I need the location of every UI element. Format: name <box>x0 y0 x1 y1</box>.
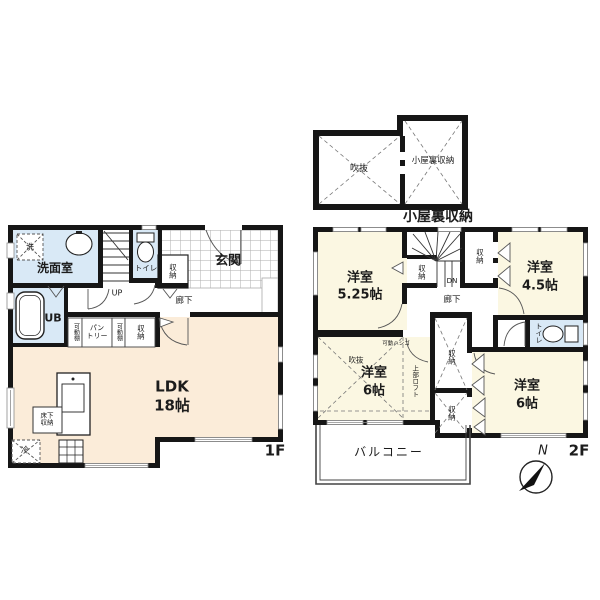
room-label-unitbath: UB <box>44 313 61 326</box>
label-closet-hall: 収納 <box>168 264 177 279</box>
label-void-2f: 吹抜 <box>349 357 364 366</box>
compass-north-label: N <box>538 445 548 460</box>
room-label-45-size: 4.5帖 <box>522 280 558 295</box>
label-balcony: バルコニー <box>354 446 424 460</box>
room-label-6r-size: 6帖 <box>516 398 538 413</box>
stove-icon <box>59 440 83 463</box>
toilet-1f-icon <box>137 233 154 242</box>
label-closet-stairs: 収納 <box>417 265 426 280</box>
label-ladder: 可動ハシゴ <box>382 341 410 347</box>
kitchen-sink-icon <box>62 384 84 412</box>
room-label-toilet-1f: トイレ <box>135 265 158 274</box>
room-label-525-size: 5.25帖 <box>337 289 382 304</box>
sink-icon <box>66 233 92 255</box>
label-corridor-2f: 廊下 <box>443 296 460 306</box>
compass-icon <box>519 461 552 493</box>
room-label-washroom: 洗面室 <box>37 262 73 276</box>
room-label-6r: 洋室 <box>514 380 540 395</box>
label-pantry: パントリー <box>87 324 108 340</box>
floorplan-canvas: 洗面室 洗 UB トイレ UP 収納 玄関 廊下 可動棚 パントリー 可動棚 収… <box>0 0 600 600</box>
label-stairs-down: DN <box>447 277 458 285</box>
label-fridge: 冷 <box>21 445 29 454</box>
floor1-label: 1F <box>265 442 286 459</box>
room-label-45: 洋室 <box>527 262 553 277</box>
room-label-ldk: LDK <box>155 378 189 395</box>
room-label-entrance: 玄関 <box>215 255 241 270</box>
stairs-1f <box>103 231 129 281</box>
room-label-6l-size: 6帖 <box>363 385 385 400</box>
room-label-ldk-size: 18帖 <box>154 397 190 414</box>
room-label-6l: 洋室 <box>361 367 387 382</box>
attic-caption: 小屋裏収納 <box>403 209 473 225</box>
label-stairs-up: UP <box>112 288 123 297</box>
label-corridor-1f: 廊下 <box>175 297 192 307</box>
room-label-525: 洋室 <box>347 272 373 287</box>
label-closet-mid: 収納 <box>447 350 456 365</box>
label-closet-kitchen: 収納 <box>136 325 145 340</box>
label-attic-storage: 小屋裏収納 <box>412 157 455 167</box>
label-loft: 上部ロフト <box>410 365 417 398</box>
label-closet-north: 収納 <box>475 249 484 264</box>
entrance-step <box>262 278 278 314</box>
label-washer: 洗 <box>26 242 34 251</box>
room-label-toilet-2f: トイレ <box>535 323 543 344</box>
label-attic-void: 吹抜 <box>350 164 368 174</box>
label-shelf-right: 可動棚 <box>115 323 122 341</box>
toilet-2f-icon <box>543 326 578 342</box>
label-shelf-left: 可動棚 <box>72 323 79 341</box>
label-closet-south: 収納 <box>447 406 456 421</box>
floorplan-graphic <box>0 0 600 600</box>
floor2-label: 2F <box>569 442 590 459</box>
label-underfloor-storage: 床下収納 <box>41 413 54 428</box>
